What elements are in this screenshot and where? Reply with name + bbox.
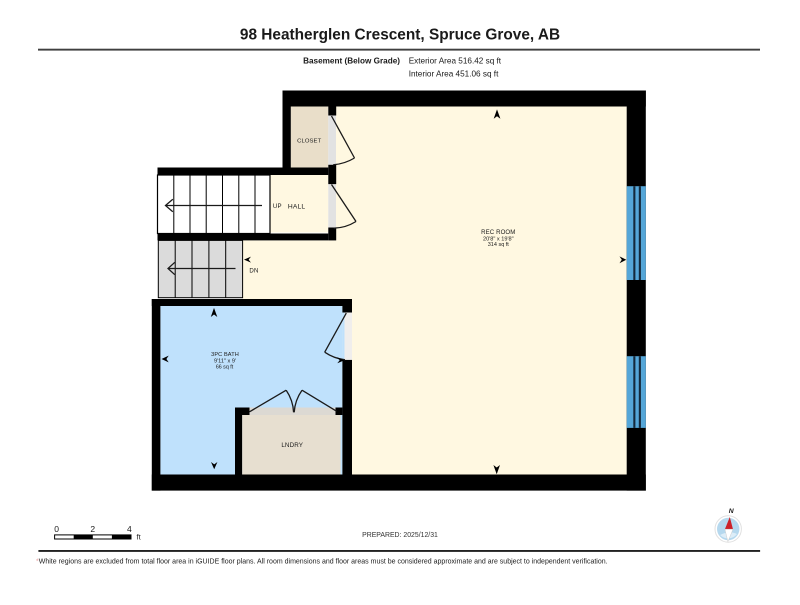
svg-text:PREPARED: 2025/12/31: PREPARED: 2025/12/31 xyxy=(362,532,438,539)
svg-text:CLOSET: CLOSET xyxy=(297,138,321,144)
svg-text:Interior Area 451.06 sq ft: Interior Area 451.06 sq ft xyxy=(409,70,499,79)
svg-text:66 sq ft: 66 sq ft xyxy=(216,364,234,370)
svg-text:UP: UP xyxy=(273,203,282,210)
svg-text:*White regions are excluded fr: *White regions are excluded from total f… xyxy=(36,558,608,565)
svg-text:DN: DN xyxy=(249,268,258,275)
svg-text:0: 0 xyxy=(54,524,59,534)
svg-text:HALL: HALL xyxy=(288,203,306,210)
svg-text:314 sq ft: 314 sq ft xyxy=(488,242,510,248)
svg-text:4: 4 xyxy=(127,524,132,534)
svg-text:3PC BATH: 3PC BATH xyxy=(211,352,239,358)
svg-text:2: 2 xyxy=(90,524,95,534)
svg-text:Exterior Area 516.42 sq ft: Exterior Area 516.42 sq ft xyxy=(409,57,502,66)
svg-text:REC ROOM: REC ROOM xyxy=(481,229,515,236)
svg-text:98 Heatherglen Crescent, Spruc: 98 Heatherglen Crescent, Spruce Grove, A… xyxy=(240,27,560,44)
svg-text:Basement (Below Grade): Basement (Below Grade) xyxy=(303,57,400,66)
svg-text:LNDRY: LNDRY xyxy=(281,442,303,449)
